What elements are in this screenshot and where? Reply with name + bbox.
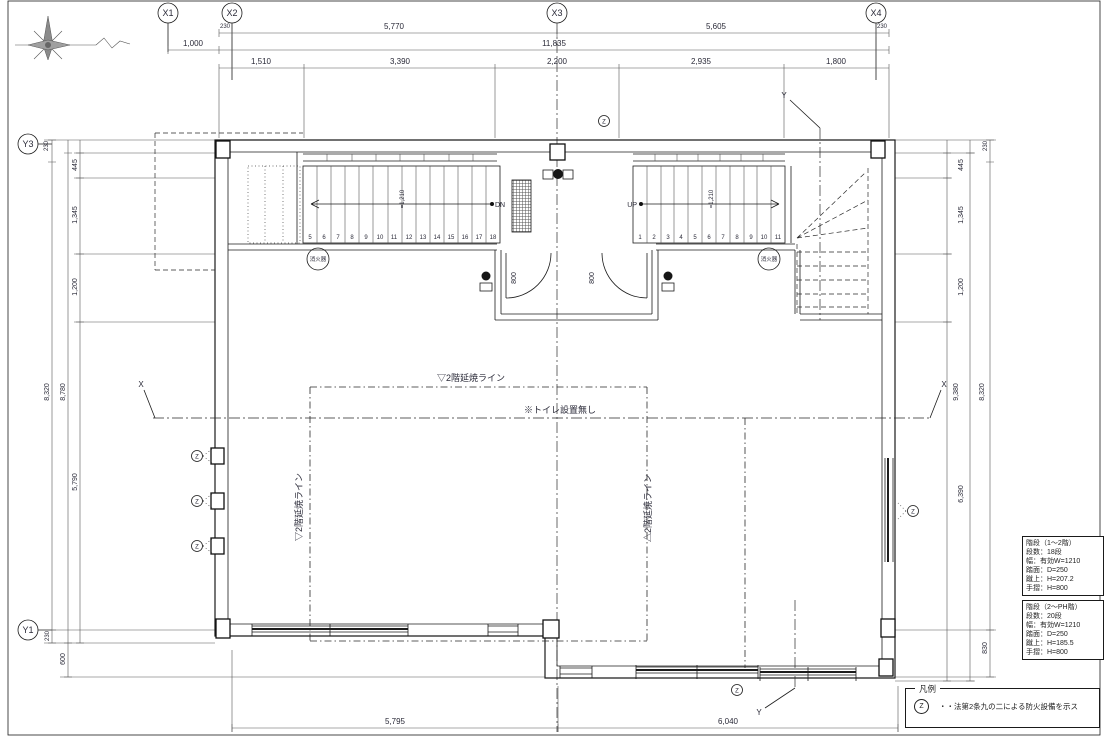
- tread-num: 5: [693, 235, 697, 241]
- note2-tread: 踏面：D=250: [1026, 630, 1100, 639]
- note1-tread: 踏面：D=250: [1026, 566, 1100, 575]
- tread-num: 2: [652, 235, 656, 241]
- dim-l-600: 600: [60, 653, 67, 665]
- z-mark: Z: [735, 689, 739, 695]
- axis-x3: X3: [551, 8, 562, 18]
- dim-l-1200: 1,200: [72, 278, 79, 296]
- tread-num: 17: [476, 235, 483, 241]
- stair-left: DN =1,210 5 6 7 8 9 10 11 12 13 14 15 16…: [303, 166, 505, 243]
- dim-l-230t: 230: [44, 140, 50, 151]
- entrance-doors: 800 800: [506, 253, 647, 298]
- ensho-line-top-label: ▽2階延焼ライン: [437, 372, 505, 383]
- z-mark: Z: [195, 500, 199, 506]
- note2-riser: 蹴上：H=185.5: [1026, 639, 1100, 648]
- top-z-mark: Z: [599, 116, 610, 127]
- right-dimensions: 230 445 1,345 1,200 9,380 8,320 6,390 83…: [895, 140, 996, 681]
- section-line-y: Y Y: [756, 91, 820, 717]
- legend-title: 凡例: [915, 683, 940, 695]
- dim-l-230b: 230: [45, 630, 51, 641]
- fire-extinguisher-marks: 消火器 消火器: [307, 248, 780, 270]
- stair-dn-label: DN: [495, 202, 505, 209]
- dim-2200: 2,200: [547, 57, 568, 66]
- note1-width: 幅：有効W=1210: [1026, 557, 1100, 566]
- tread-num: 12: [406, 235, 413, 241]
- tread-num: 11: [775, 235, 782, 241]
- dim-r-1200: 1,200: [958, 278, 965, 296]
- tread-num: 13: [420, 235, 427, 241]
- dim-r-6390: 6,390: [958, 485, 965, 503]
- tread-num: 14: [434, 235, 441, 241]
- axis-y1: Y1: [22, 625, 33, 635]
- dim-6040: 6,040: [718, 717, 739, 726]
- tread-num: 7: [721, 235, 725, 241]
- dim-r-445: 445: [958, 159, 965, 171]
- grid-axis-labels: X1 X2 X3 X4 Y3 Y1: [18, 3, 886, 732]
- note1-steps: 段数：18段: [1026, 548, 1100, 557]
- fire-ext-label-1: 消火器: [310, 255, 327, 263]
- z-mark: Z: [602, 120, 606, 126]
- dim-5795: 5,795: [385, 717, 406, 726]
- stair-right-width: =1,210: [709, 189, 715, 208]
- tread-num: 16: [462, 235, 469, 241]
- dim-r-8320: 8,320: [979, 383, 986, 401]
- tread-num: 7: [336, 235, 340, 241]
- legend-desc: ・・法第2条九の二による防火設備を示ス: [939, 701, 1078, 712]
- tread-num: 10: [377, 235, 384, 241]
- tread-num: 11: [391, 235, 398, 241]
- tread-num: 18: [490, 235, 497, 241]
- stair-right: UP =1,210 1 2 3 4 5 6 7 8 9 10 11: [627, 166, 785, 243]
- tread-num: 8: [350, 235, 354, 241]
- ensho-line-left-label: ▽2階延焼ライン: [293, 473, 304, 541]
- door-width-2: 800: [589, 272, 596, 284]
- tread-num: 3: [666, 235, 670, 241]
- tread-num: 10: [761, 235, 768, 241]
- section-mark-x-right: X: [941, 380, 947, 389]
- bottom-right-windows: Z: [560, 665, 856, 696]
- dim-3390: 3,390: [390, 57, 411, 66]
- stair-note-1: 階段（1〜2階） 段数：18段 幅：有効W=1210 踏面：D=250 蹴上：H…: [1022, 536, 1104, 596]
- vent-fan-icon: [543, 169, 573, 179]
- dim-r-230t: 230: [983, 140, 989, 151]
- ensho-line-right-label: △2階延焼ライン: [642, 474, 653, 542]
- bottom-left-windows: [252, 624, 518, 636]
- stair-above-dashed: [797, 168, 868, 314]
- note1-riser: 蹴上：H=207.2: [1026, 575, 1100, 584]
- tread-num: 9: [364, 235, 368, 241]
- dim-l-1345: 1,345: [72, 206, 79, 224]
- plan-svg: X1 X2 X3 X4 Y3 Y1 230 5,770 5,605 230 1,…: [0, 0, 1104, 738]
- dim-r-9380: 9,380: [953, 383, 960, 401]
- tread-num: 1: [638, 235, 642, 241]
- dim-11835: 11,835: [542, 39, 566, 48]
- stair-left-width: =1,210: [400, 189, 406, 208]
- legend-z-symbol: Z: [914, 699, 929, 714]
- stair-up-label: UP: [627, 202, 637, 209]
- tread-num: 8: [735, 235, 739, 241]
- hatched-shaft: [512, 180, 531, 232]
- no-toilet-note: ※トイレ設置無し: [524, 404, 596, 415]
- tread-num: 9: [749, 235, 753, 241]
- section-mark-y-bottom: Y: [756, 708, 762, 717]
- axis-x2: X2: [226, 8, 237, 18]
- top-window-band: [303, 154, 785, 161]
- dim-230-right: 230: [877, 24, 888, 30]
- dim-1510: 1,510: [251, 57, 272, 66]
- note2-rail: 手摺：H=800: [1026, 648, 1100, 657]
- axis-x4: X4: [870, 8, 881, 18]
- floor-plan-drawing: X1 X2 X3 X4 Y3 Y1 230 5,770 5,605 230 1,…: [0, 0, 1104, 738]
- left-dimensions: 230 445 1,345 1,200 8,320 8,780 5,790 23…: [44, 140, 545, 677]
- note2-steps: 段数：20段: [1026, 612, 1100, 621]
- dim-l-8320: 8,320: [44, 383, 51, 401]
- dim-l-445: 445: [72, 159, 79, 171]
- note2-title: 階段（2〜PH階）: [1026, 603, 1100, 612]
- tread-num: 6: [322, 235, 326, 241]
- tread-num: 5: [308, 235, 312, 241]
- door-width-1: 800: [511, 272, 518, 284]
- axis-x1: X1: [162, 8, 173, 18]
- right-wall-window: Z: [885, 458, 919, 562]
- z-mark: Z: [195, 545, 199, 551]
- legend-box: 凡例 Z ・・法第2条九の二による防火設備を示ス: [905, 688, 1100, 728]
- dim-5605: 5,605: [706, 22, 727, 31]
- tread-num: 15: [448, 235, 455, 241]
- tread-num: 4: [679, 235, 683, 241]
- note2-width: 幅：有効W=1210: [1026, 621, 1100, 630]
- z-mark: Z: [911, 510, 915, 516]
- dim-l-8780: 8,780: [60, 383, 67, 401]
- fire-ext-label-2: 消火器: [761, 255, 778, 263]
- dim-5770: 5,770: [384, 22, 405, 31]
- top-dimensions: 230 5,770 5,605 230 1,000 11,835 1,510 3…: [168, 22, 889, 138]
- note1-title: 階段（1〜2階）: [1026, 539, 1100, 548]
- section-mark-x-left: X: [138, 380, 144, 389]
- wall-light-icon: [480, 272, 674, 292]
- note1-rail: 手摺：H=800: [1026, 584, 1100, 593]
- dim-r-1345: 1,345: [958, 206, 965, 224]
- dim-1000: 1,000: [183, 39, 204, 48]
- axis-y3: Y3: [22, 139, 33, 149]
- bottom-dimensions: 5,795 6,040: [232, 650, 898, 732]
- dim-1800: 1,800: [826, 57, 847, 66]
- tread-num: 6: [707, 235, 711, 241]
- north-arrow-icon: [15, 16, 130, 60]
- left-wall-fittings: Z Z Z: [192, 448, 225, 554]
- section-mark-y-top: Y: [781, 91, 787, 100]
- stair-note-2: 階段（2〜PH階） 段数：20段 幅：有効W=1210 踏面：D=250 蹴上：…: [1022, 600, 1104, 660]
- dim-2935: 2,935: [691, 57, 712, 66]
- dim-l-5790: 5,790: [72, 473, 79, 491]
- dim-r-830: 830: [982, 642, 989, 654]
- dim-230-left: 230: [220, 24, 231, 30]
- z-mark: Z: [195, 455, 199, 461]
